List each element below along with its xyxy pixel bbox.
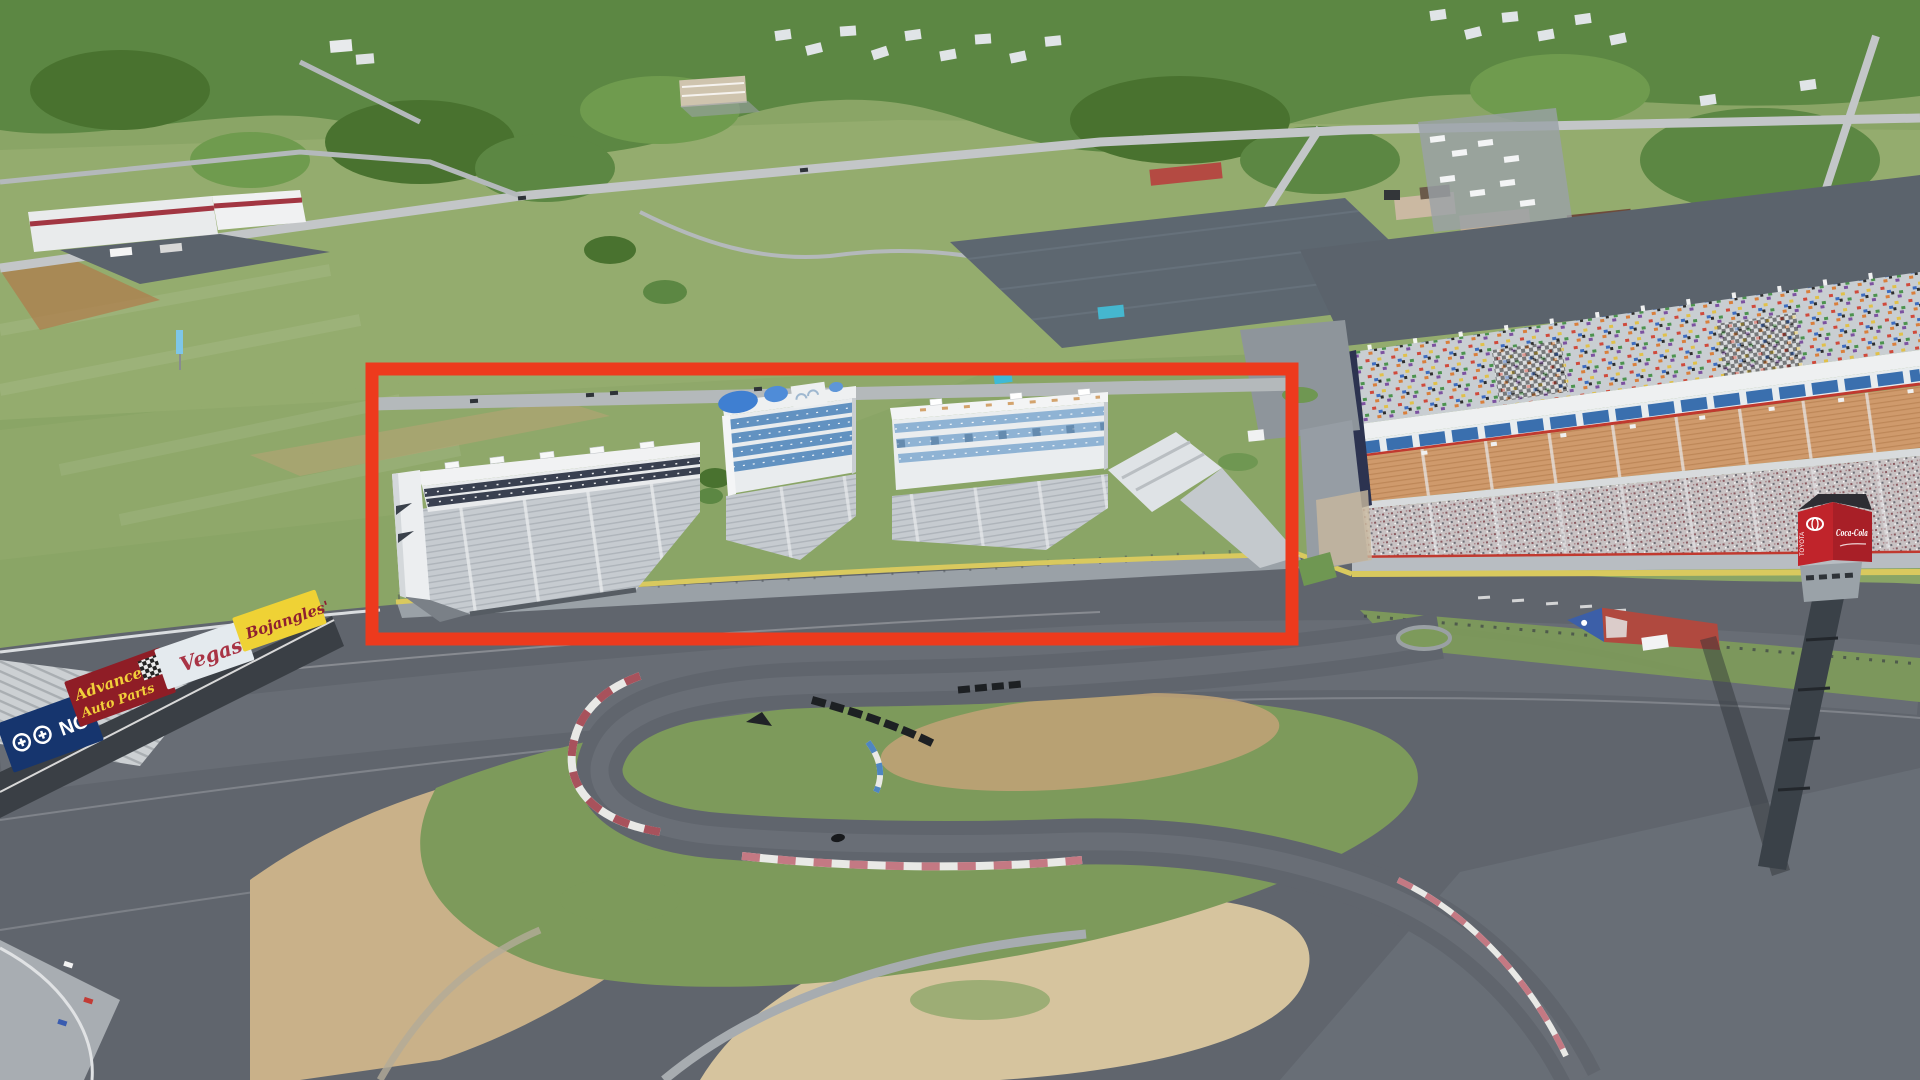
rv-trailer-lot xyxy=(1418,108,1572,232)
toyota-label: TOYOTA xyxy=(1800,532,1806,556)
aerial-photo: NC Advance Auto Parts Vegas Bojangles' xyxy=(0,0,1920,1080)
grass-roundabout xyxy=(1398,627,1450,649)
coca-cola-sign: Coca-Cola xyxy=(1833,502,1872,562)
blue-banner-flag xyxy=(176,330,183,354)
coca-cola-label: Coca-Cola xyxy=(1836,529,1868,539)
toyota-sign: TOYOTA xyxy=(1798,502,1833,566)
